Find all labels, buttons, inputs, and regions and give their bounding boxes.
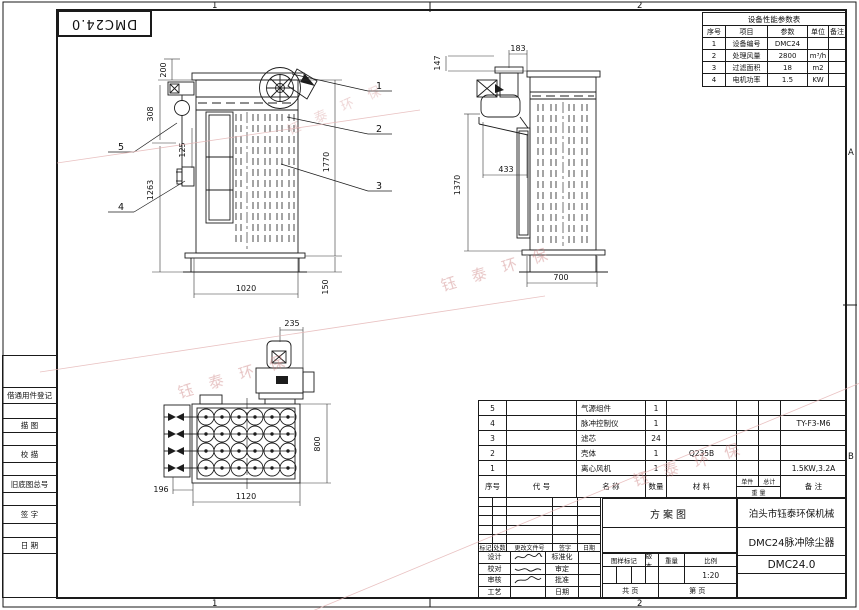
watermark-text: 钰 泰 环 保: [286, 82, 389, 139]
signature: [511, 575, 546, 587]
sign-label: 日期: [546, 587, 579, 599]
signature-grid: 设计 标准化 校对 审定 审核 批准 工艺 日期: [478, 552, 602, 598]
bom-header-weight-block: 单件 总计 重 量: [737, 476, 781, 498]
param-col-header: 参数: [768, 26, 808, 38]
drawing-number: DMC24.0: [737, 555, 846, 574]
param-col-header: 单位: [808, 26, 829, 38]
reference-number: DMC24.0: [71, 16, 137, 31]
side-dimension-labels: 147 183 433 1370 700: [433, 44, 569, 282]
balloon-numbers: 1 2 3 5 4: [118, 81, 382, 213]
bom-header-unit-weight: 单件: [737, 476, 759, 487]
bom-name: 壳体: [577, 446, 646, 461]
dim-1263: 1263: [146, 180, 155, 200]
balloon-4: 4: [118, 202, 124, 213]
stamp-block: 图样标记 版本 重量 比例 1:20 共 页 第 页: [602, 553, 737, 598]
param-cell: [829, 62, 845, 74]
product-name: DMC24脉冲除尘器: [737, 527, 846, 556]
pulse-valve-assembly: [168, 82, 194, 167]
bom-no: 5: [479, 401, 507, 416]
balloon-3: 3: [376, 181, 382, 192]
top-dimension-labels: 235 800 196 1120: [153, 319, 322, 501]
bom-material: Q235B: [667, 446, 737, 461]
sign-label: 设计: [479, 552, 511, 564]
zone-right-a: A: [848, 148, 854, 158]
inlet-fitting: [176, 167, 194, 186]
bom-header-weight: 重 量: [737, 487, 780, 497]
bom-header-code: 代 号: [507, 476, 577, 498]
stamp-header-weight: 重量: [659, 554, 686, 567]
stamp-header-mark: 图样标记: [603, 554, 646, 567]
dim-308: 308: [146, 106, 155, 121]
bom-name: 脉冲控制仪: [577, 416, 646, 431]
front-dimension-labels: 200 308 125 1263 1770 1020 150: [146, 62, 331, 294]
param-cell: [829, 74, 845, 86]
sign-label: 工艺: [479, 587, 511, 599]
pages-number: 第 页: [659, 584, 737, 598]
margin-strip: 借通用件登记 描 图 校 描 旧底图总号 签 字 日 期: [2, 355, 57, 598]
bom-no: 3: [479, 431, 507, 446]
dim-1120: 1120: [236, 492, 256, 501]
margin-label-signature: 签 字: [3, 506, 56, 524]
param-cell: 2800: [768, 50, 808, 62]
dim-150: 150: [321, 279, 330, 294]
param-cell: 2: [703, 50, 726, 62]
param-cell: [829, 50, 845, 62]
dim-1370: 1370: [453, 175, 462, 195]
param-cell: 处理风量: [726, 50, 768, 62]
param-cell: 过滤面积: [726, 62, 768, 74]
bom-material: [667, 461, 737, 476]
param-col-header: 备注: [829, 26, 845, 38]
param-cell: KW: [808, 74, 829, 86]
dim-196: 196: [153, 485, 168, 494]
bom-code: [507, 416, 577, 431]
param-cell: [808, 38, 829, 50]
bom-header-material: 材 料: [667, 476, 737, 498]
scale-value: 1:20: [685, 567, 737, 584]
bom-code: [507, 446, 577, 461]
sign-label: 审核: [479, 575, 511, 587]
param-cell: 电机功率: [726, 74, 768, 86]
dim-433: 433: [498, 165, 513, 174]
param-col-header: 项目: [726, 26, 768, 38]
zone-top-2: 2: [637, 1, 642, 11]
dim-1770: 1770: [322, 152, 331, 172]
bom-material: [667, 431, 737, 446]
air-manifold: [164, 405, 199, 477]
bom-header-qty: 数量: [646, 476, 667, 498]
bom-qty: 24: [646, 431, 667, 446]
dim-700: 700: [553, 273, 568, 282]
balloon-5: 5: [118, 142, 124, 153]
param-cell: 设备编号: [726, 38, 768, 50]
dim-200: 200: [159, 62, 168, 77]
fan-side: [477, 67, 528, 135]
bom-name: 气源组件: [577, 401, 646, 416]
revision-grid: 标记 处数 更改文件号 签字 日期: [478, 498, 602, 552]
bom-remark: TY-F3-M6: [781, 416, 847, 431]
bom-header-no: 序号: [479, 476, 507, 498]
bom-remark: [781, 431, 847, 446]
fan-top: [256, 341, 314, 404]
fan-icon: [260, 68, 318, 109]
pages-total: 共 页: [603, 584, 659, 598]
zone-bottom-1: 1: [212, 599, 217, 609]
bom-qty: 1: [646, 401, 667, 416]
balloon-leaders: [108, 74, 392, 212]
sign-label: 校对: [479, 564, 511, 576]
dim-183: 183: [510, 44, 525, 53]
param-cell: m2: [808, 62, 829, 74]
param-cell: 1: [703, 38, 726, 50]
stamp-header-scale: 比例: [685, 554, 737, 567]
side-dimensions: [446, 50, 597, 287]
company-name: 泊头市钰泰环保机械: [737, 498, 846, 528]
param-cell: 18: [768, 62, 808, 74]
bom-name: 滤芯: [577, 431, 646, 446]
margin-label-common-parts: 借通用件登记: [3, 388, 56, 404]
bom-qty: 1: [646, 461, 667, 476]
zone-bottom-2: 2: [637, 599, 642, 609]
drawing-sheet: 1 2 1 2 A B DMC24.0 借通用件登记 描 图 校 描 旧底图总号…: [0, 0, 859, 610]
filter-cartridges: [236, 114, 294, 246]
bom-material: [667, 401, 737, 416]
param-cell: 4: [703, 74, 726, 86]
stamp-empty-row: [602, 527, 737, 553]
watermark-text: 钰 泰 环 保: [176, 351, 292, 402]
bom-qty: 1: [646, 416, 667, 431]
reference-number-box: DMC24.0: [57, 10, 152, 37]
param-cell: 1.5: [768, 74, 808, 86]
rev-header-count: 处数: [493, 544, 507, 552]
bom-name: 离心风机: [577, 461, 646, 476]
param-cell: 3: [703, 62, 726, 74]
cartridge-circles: [198, 409, 296, 476]
signature: [511, 552, 546, 564]
bom-no: 1: [479, 461, 507, 476]
sign-label: 审定: [546, 564, 579, 576]
bom-material: [667, 416, 737, 431]
rev-header-mark: 标记: [479, 544, 493, 552]
dim-147: 147: [433, 55, 442, 70]
drawing-type: 方案图: [602, 498, 737, 528]
bom-code: [507, 431, 577, 446]
cartridge-centers: [204, 415, 289, 469]
bom-no: 2: [479, 446, 507, 461]
rev-header-date: 日期: [578, 544, 601, 552]
rev-header-file: 更改文件号: [507, 544, 553, 552]
bom-remark: [781, 401, 847, 416]
watermark-text: 钰 泰 环 保: [439, 244, 555, 295]
zone-top-1: 1: [212, 1, 217, 11]
bom-header: 序号 代 号 名 称 数量 材 料 单件 总计 重 量 备 注: [479, 476, 847, 498]
bom-remark: 1.5KW,3.2A: [781, 461, 847, 476]
title-empty-cell: [737, 573, 846, 598]
param-cell: DMC24: [768, 38, 808, 50]
bom-qty: 1: [646, 446, 667, 461]
bom-rows: 5 气源组件 1 4 脉冲控制仪 1 TY-F3-M6 3 滤芯 24 2 壳体…: [479, 401, 847, 476]
param-cell: m³/h: [808, 50, 829, 62]
param-table-title: 设备性能参数表: [703, 13, 845, 26]
side-view: [477, 67, 608, 272]
bom-header-remark: 备 注: [781, 476, 847, 498]
stamp-header-version: 版本: [646, 554, 659, 567]
param-cell: [829, 38, 845, 50]
margin-label-old-base-no: 旧底图总号: [3, 476, 56, 493]
bom-header-total-weight: 总计: [759, 476, 780, 487]
signature: [511, 564, 546, 576]
top-dimensions: [173, 327, 331, 506]
side-base: [519, 250, 608, 272]
dim-235: 235: [284, 319, 299, 328]
param-table: 设备性能参数表 序号 项目 参数 单位 备注 1 设备编号 DMC24 2 处理…: [702, 12, 846, 87]
dim-125: 125: [178, 142, 187, 157]
rev-header-sign: 签字: [553, 544, 578, 552]
dim-1020: 1020: [236, 284, 256, 293]
sign-label: 标准化: [546, 552, 579, 564]
margin-label-tracing: 描 图: [3, 419, 56, 433]
sign-label: 批准: [546, 575, 579, 587]
margin-label-date: 日 期: [3, 538, 56, 554]
param-col-header: 序号: [703, 26, 726, 38]
bom-header-name: 名 称: [577, 476, 646, 498]
access-door: [206, 112, 233, 223]
top-view: [164, 341, 314, 489]
side-door: [517, 128, 530, 238]
front-dimensions: [152, 59, 342, 298]
front-view: [168, 68, 317, 273]
zone-right-b: B: [848, 452, 854, 462]
bom-code: [507, 461, 577, 476]
margin-label-check-tracing: 校 描: [3, 446, 56, 463]
bom-remark: [781, 446, 847, 461]
bom-table: 5 气源组件 1 4 脉冲控制仪 1 TY-F3-M6 3 滤芯 24 2 壳体…: [478, 400, 847, 498]
dim-800: 800: [313, 436, 322, 451]
bom-code: [507, 401, 577, 416]
balloon-2: 2: [376, 124, 382, 135]
base-legs: [183, 253, 307, 272]
balloon-1: 1: [376, 81, 382, 92]
bom-no: 4: [479, 416, 507, 431]
